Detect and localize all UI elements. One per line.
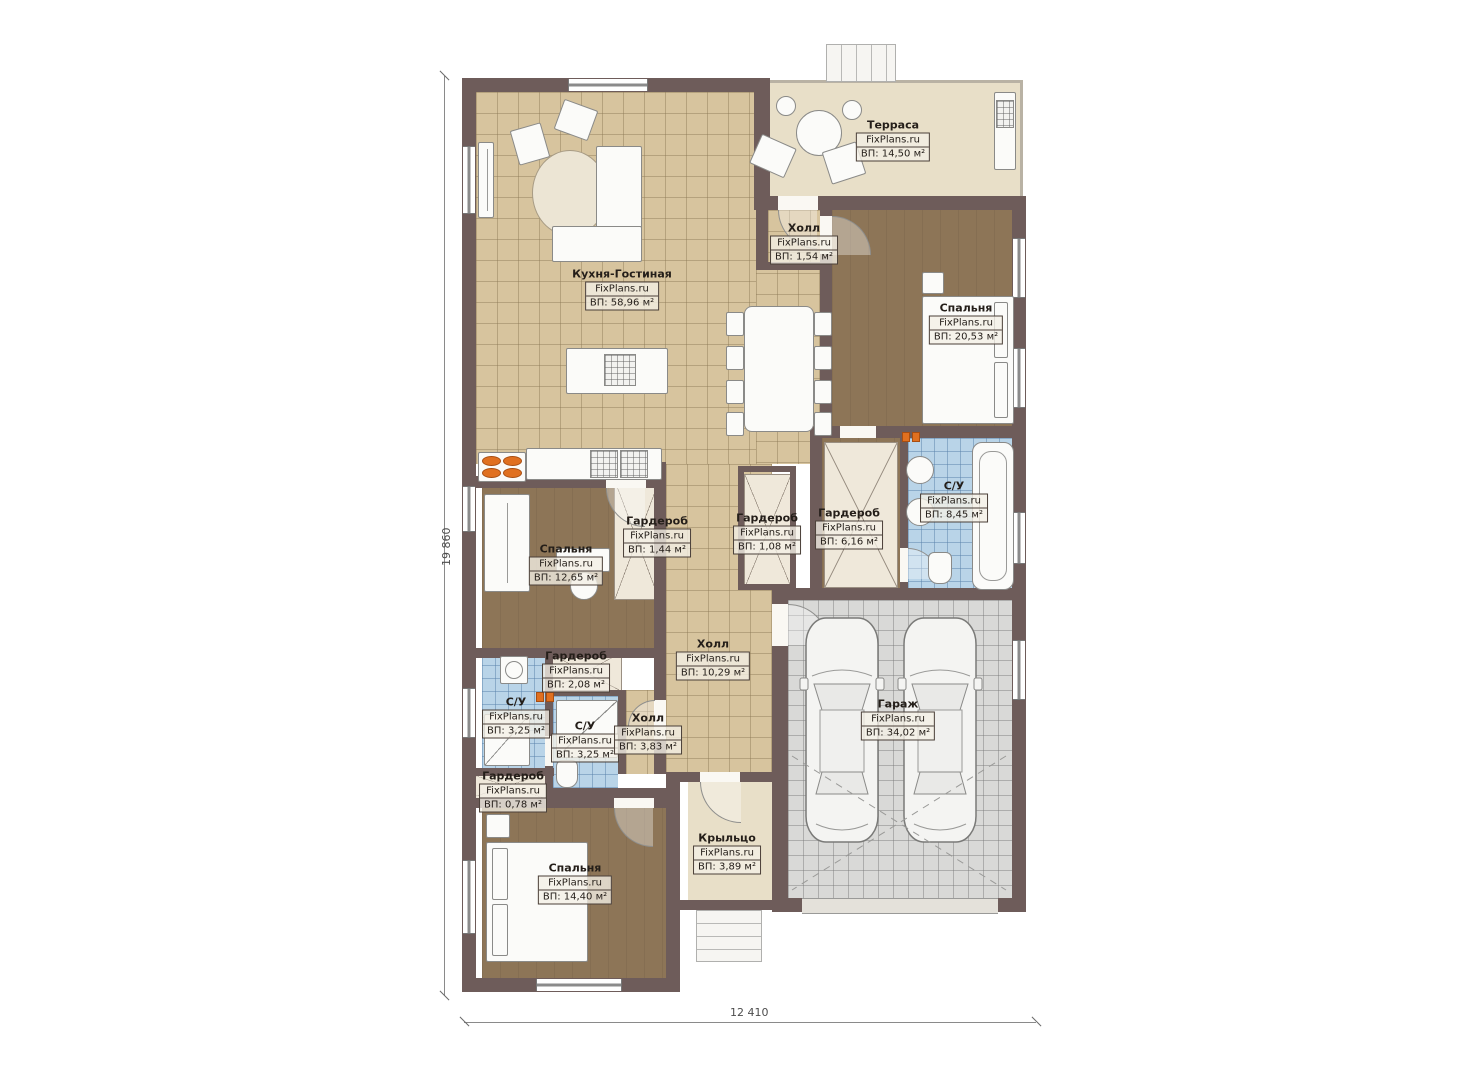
brand-text: FixPlans.ru: [771, 237, 837, 250]
label-box: FixPlans.ru ВП: 12,65 м²: [529, 557, 603, 586]
label-box: FixPlans.ru ВП: 3,89 м²: [693, 846, 761, 875]
wall-segment: [462, 78, 476, 992]
brand-text: FixPlans.ru: [480, 785, 546, 798]
room-label-terrace: Терраса FixPlans.ru ВП: 14,50 м²: [856, 119, 930, 162]
door-opening: [840, 426, 876, 438]
pillow: [492, 904, 508, 956]
room-label-wardrobe-078: Гардероб FixPlans.ru ВП: 0,78 м²: [479, 770, 547, 813]
room-area: ВП: 58,96 м²: [586, 296, 658, 310]
label-box: FixPlans.ru ВП: 2,08 м²: [542, 664, 610, 693]
window: [463, 146, 475, 214]
room-name: Гардероб: [482, 770, 544, 783]
room-area: ВП: 0,78 м²: [480, 798, 546, 812]
room-area: ВП: 1,08 м²: [734, 540, 800, 554]
room-label-bathroom-left: С/У FixPlans.ru ВП: 3,25 м²: [482, 696, 550, 739]
room-label-bathroom-main: С/У FixPlans.ru ВП: 8,45 м²: [920, 480, 988, 523]
dishwasher: [590, 450, 618, 478]
brand-text: FixPlans.ru: [624, 530, 690, 543]
room-name: Спальня: [549, 862, 602, 875]
brand-text: FixPlans.ru: [586, 283, 658, 296]
door-opening: [700, 772, 740, 782]
label-box: FixPlans.ru ВП: 3,25 м²: [551, 734, 619, 763]
wall-segment: [740, 772, 774, 782]
room-area: ВП: 34,02 м²: [862, 726, 934, 740]
room-label-wardrobe-144: Гардероб FixPlans.ru ВП: 1,44 м²: [623, 515, 691, 558]
brand-text: FixPlans.ru: [539, 877, 611, 890]
window: [1013, 512, 1025, 564]
brand-text: FixPlans.ru: [862, 713, 934, 726]
room-area: ВП: 14,40 м²: [539, 890, 611, 904]
room-label-kitchen-living: Кухня-Гостиная FixPlans.ru ВП: 58,96 м²: [572, 268, 672, 311]
room-label-wardrobe-208: Гардероб FixPlans.ru ВП: 2,08 м²: [542, 650, 610, 693]
window: [463, 486, 475, 532]
pillow: [994, 362, 1008, 418]
window: [1013, 640, 1025, 700]
wall-segment: [738, 584, 796, 590]
room-label-hall-main: Холл FixPlans.ru ВП: 10,29 м²: [676, 638, 750, 681]
kitchen-sink: [620, 450, 648, 478]
brand-text: FixPlans.ru: [677, 653, 749, 666]
room-area: ВП: 1,44 м²: [624, 543, 690, 557]
brand-text: FixPlans.ru: [816, 522, 882, 535]
room-area: ВП: 14,50 м²: [857, 147, 929, 161]
room-name: Спальня: [940, 302, 993, 315]
room-label-bedroom-bottom: Спальня FixPlans.ru ВП: 14,40 м²: [538, 862, 612, 905]
floor-plan: Терраса FixPlans.ru ВП: 14,50 м² Холл Fi…: [0, 0, 1474, 1080]
room-area: ВП: 2,08 м²: [543, 678, 609, 692]
porch-steps: [696, 910, 762, 962]
grill: [996, 100, 1014, 128]
chair: [814, 346, 832, 370]
electric-panel-icon: [902, 432, 920, 442]
brand-text: FixPlans.ru: [857, 134, 929, 147]
brand-text: FixPlans.ru: [530, 558, 602, 571]
label-box: FixPlans.ru ВП: 14,50 м²: [856, 133, 930, 162]
room-label-hall-entry: Холл FixPlans.ru ВП: 1,54 м²: [770, 222, 838, 265]
room-area: ВП: 3,83 м²: [615, 740, 681, 754]
label-box: FixPlans.ru ВП: 20,53 м²: [929, 316, 1003, 345]
dimension-height: 19 860: [440, 528, 453, 567]
washing-machine: [500, 656, 528, 684]
label-box: FixPlans.ru ВП: 10,29 м²: [676, 652, 750, 681]
chair: [814, 380, 832, 404]
wall-segment: [548, 788, 668, 798]
label-box: FixPlans.ru ВП: 6,16 м²: [815, 521, 883, 550]
tv-cabinet: [478, 142, 494, 218]
window: [568, 79, 648, 91]
brand-text: FixPlans.ru: [615, 727, 681, 740]
wardrobe-cabinet: [484, 494, 530, 592]
chair: [726, 380, 744, 404]
stove: [478, 452, 526, 482]
wall-segment: [666, 772, 680, 992]
room-name: Гардероб: [626, 515, 688, 528]
dimension-line-bottom: [464, 1022, 1036, 1023]
brand-text: FixPlans.ru: [694, 847, 760, 860]
room-label-porch: Крыльцо FixPlans.ru ВП: 3,89 м²: [693, 832, 761, 875]
room-label-wardrobe-616: Гардероб FixPlans.ru ВП: 6,16 м²: [815, 507, 883, 550]
room-name: Холл: [632, 712, 664, 725]
door-opening: [900, 548, 908, 582]
door-opening: [778, 196, 818, 210]
brand-text: FixPlans.ru: [930, 317, 1002, 330]
room-name: Спальня: [540, 543, 593, 556]
terrace-step: [826, 44, 896, 82]
nightstand: [486, 814, 510, 838]
terrace-edge: [1020, 80, 1023, 196]
room-name: С/У: [506, 696, 527, 709]
toilet: [928, 552, 952, 584]
door-opening: [772, 604, 788, 646]
brand-text: FixPlans.ru: [543, 665, 609, 678]
label-box: FixPlans.ru ВП: 34,02 м²: [861, 712, 935, 741]
nightstand: [922, 272, 944, 294]
chair: [814, 412, 832, 436]
room-area: ВП: 20,53 м²: [930, 330, 1002, 344]
dimension-width: 12 410: [730, 1006, 769, 1019]
room-area: ВП: 3,25 м²: [552, 748, 618, 762]
chair: [726, 312, 744, 336]
label-box: FixPlans.ru ВП: 3,83 м²: [614, 726, 682, 755]
room-area: ВП: 1,54 м²: [771, 250, 837, 264]
window: [463, 688, 475, 738]
label-box: FixPlans.ru ВП: 0,78 м²: [479, 784, 547, 813]
room-name: Холл: [697, 638, 729, 651]
room-name: Гардероб: [818, 507, 880, 520]
room-area: ВП: 10,29 м²: [677, 666, 749, 680]
label-box: FixPlans.ru ВП: 8,45 м²: [920, 494, 988, 523]
room-label-garage: Гараж FixPlans.ru ВП: 34,02 м²: [861, 698, 935, 741]
room-name: Крыльцо: [698, 832, 756, 845]
window: [463, 860, 475, 934]
room-label-bathroom-mid: С/У FixPlans.ru ВП: 3,25 м²: [551, 720, 619, 763]
wall-segment: [680, 900, 774, 910]
wall-segment: [680, 772, 700, 782]
room-area: ВП: 12,65 м²: [530, 571, 602, 585]
door-opening: [614, 798, 654, 808]
chair: [726, 412, 744, 436]
sofa-chaise: [552, 226, 642, 262]
chair: [814, 312, 832, 336]
garage-markings: [788, 600, 1012, 898]
toilet: [556, 760, 578, 788]
window: [536, 979, 622, 991]
label-box: FixPlans.ru ВП: 14,40 м²: [538, 876, 612, 905]
terrace-chair: [776, 96, 796, 116]
brand-text: FixPlans.ru: [734, 527, 800, 540]
brand-text: FixPlans.ru: [552, 735, 618, 748]
chair: [726, 346, 744, 370]
window: [1013, 348, 1025, 408]
label-box: FixPlans.ru ВП: 1,54 м²: [770, 236, 838, 265]
label-box: FixPlans.ru ВП: 1,08 м²: [733, 526, 801, 555]
dining-table: [744, 306, 814, 432]
garage-door: [802, 898, 998, 914]
room-name: С/У: [944, 480, 965, 493]
window: [1013, 238, 1025, 298]
island-sink: [604, 354, 636, 386]
brand-text: FixPlans.ru: [483, 711, 549, 724]
room-label-bedroom-tr: Спальня FixPlans.ru ВП: 20,53 м²: [929, 302, 1003, 345]
room-name: С/У: [575, 720, 596, 733]
wall-segment: [756, 196, 768, 268]
room-area: ВП: 3,25 м²: [483, 724, 549, 738]
room-name: Холл: [788, 222, 820, 235]
room-name: Терраса: [867, 119, 919, 132]
label-box: FixPlans.ru ВП: 1,44 м²: [623, 529, 691, 558]
room-name: Гардероб: [736, 512, 798, 525]
room-label-hall-small: Холл FixPlans.ru ВП: 3,83 м²: [614, 712, 682, 755]
room-name: Кухня-Гостиная: [572, 268, 672, 281]
room-name: Гардероб: [545, 650, 607, 663]
room-label-wardrobe-108: Гардероб FixPlans.ru ВП: 1,08 м²: [733, 512, 801, 555]
room-name: Гараж: [878, 698, 919, 711]
room-area: ВП: 6,16 м²: [816, 535, 882, 549]
terrace-chair: [842, 100, 862, 120]
wall-segment: [738, 466, 796, 472]
label-box: FixPlans.ru ВП: 58,96 м²: [585, 282, 659, 311]
room-label-bedroom-mid: Спальня FixPlans.ru ВП: 12,65 м²: [529, 543, 603, 586]
label-box: FixPlans.ru ВП: 3,25 м²: [482, 710, 550, 739]
room-area: ВП: 3,89 м²: [694, 860, 760, 874]
pillow: [492, 848, 508, 900]
brand-text: FixPlans.ru: [921, 495, 987, 508]
room-area: ВП: 8,45 м²: [921, 508, 987, 522]
